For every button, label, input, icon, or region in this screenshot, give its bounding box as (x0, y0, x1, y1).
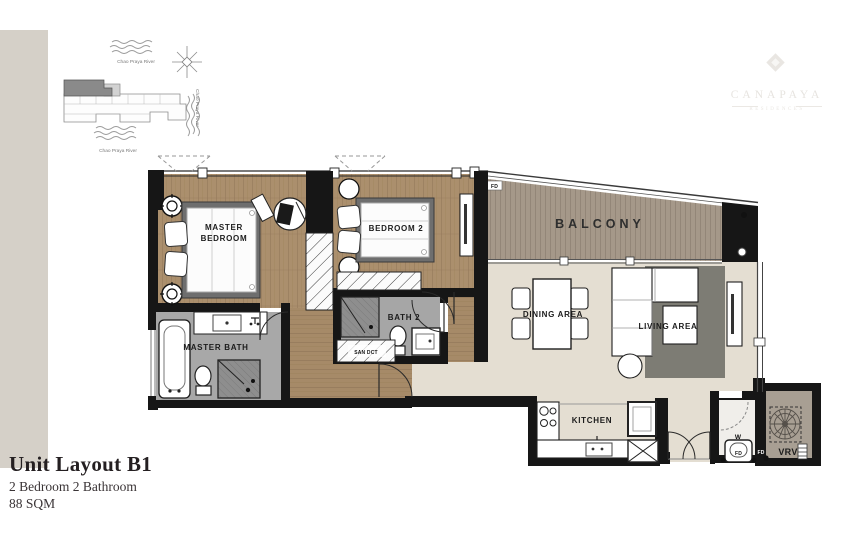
shower-icon (341, 297, 379, 337)
unit-location-highlight (64, 80, 112, 96)
vanity-sink-icon (412, 328, 440, 355)
living-area: LIVING AREA (612, 266, 742, 378)
brand-logo: CANAPAYA RESIDENCES (731, 53, 824, 112)
river-label-top: Chao Praya River (117, 59, 155, 65)
dining-chair-icon (570, 288, 588, 309)
dining-chair-icon (512, 288, 530, 309)
dining-chair-icon (570, 318, 588, 339)
river-waves-bottom-icon (94, 127, 136, 140)
river-label-right: Chao Praya River (194, 89, 200, 127)
dining-area: DINING AREA (512, 279, 588, 349)
vrv-label: VRV (778, 447, 797, 457)
bedroom2-tv-cabinet (460, 194, 473, 256)
balcony-fd-label: FD (491, 184, 498, 190)
vrv-fan-icon (770, 409, 800, 439)
living-label: LIVING AREA (639, 322, 698, 331)
unit-layout-title: Unit Layout B1 (9, 452, 152, 477)
shower-icon (218, 360, 260, 398)
title-block: Unit Layout B1 2 Bedroom 2 Bathroom 88 S… (9, 452, 152, 512)
floor-plan: FD BALCONY (148, 156, 821, 466)
master-bedroom-label-2: BEDROOM (201, 234, 248, 243)
page: Chao Praya River (0, 0, 850, 560)
unit-area-text: 88 SQM (9, 496, 152, 512)
laundry-room: W FD (719, 400, 756, 462)
vrv-fd-label: FD (757, 450, 764, 456)
dining-label: DINING AREA (523, 310, 583, 319)
corridor-floor-a (283, 308, 333, 402)
compass-icon (172, 46, 202, 78)
pillow-icon (337, 230, 361, 254)
corridor-floor-b (333, 362, 413, 402)
logo-brand-subtext: RESIDENCES (749, 107, 804, 112)
river-waves-top-icon (110, 41, 152, 54)
stove-counter (537, 402, 559, 446)
unit-layout-subtitle: 2 Bedroom 2 Bathroom (9, 479, 152, 495)
living-tv-console (727, 282, 742, 346)
sanitary-duct: SAN DCT (337, 340, 395, 362)
fridge-icon (628, 402, 656, 436)
south-wall-mid (405, 396, 537, 407)
bathtub-icon (159, 320, 190, 398)
pillow-icon (337, 205, 361, 229)
river-label-bottom: Chao Praya River (99, 148, 137, 154)
bedroom2-wardrobe (337, 272, 421, 290)
site-map: Chao Praya River (64, 41, 202, 155)
washing-machine-icon: FD (725, 440, 752, 462)
san-duct-label: SAN DCT (354, 350, 378, 356)
kitchen-label: KITCHEN (572, 416, 612, 425)
master-bath-label: MASTER BATH (183, 343, 248, 352)
vanity-sink-icon (194, 312, 267, 334)
master-bedroom-label-1: MASTER (205, 223, 243, 232)
side-table-icon (339, 179, 359, 199)
toilet-icon (195, 366, 211, 395)
awning-projection-lines (158, 156, 385, 171)
washer-fd-label: FD (735, 451, 742, 457)
dining-chair-icon (512, 318, 530, 339)
pillow-icon (164, 251, 188, 276)
logo-brand-text: CANAPAYA (731, 89, 824, 101)
corridor-nook-floor (448, 292, 478, 364)
bedroom-divider-wall (306, 171, 333, 235)
balcony: FD BALCONY (487, 172, 758, 263)
corridor-wardrobe (306, 233, 333, 310)
balcony-drain-icon (738, 248, 746, 256)
round-side-table-icon (618, 354, 642, 378)
building-footprint (64, 80, 186, 122)
bedroom2-label: BEDROOM 2 (369, 224, 424, 233)
master-bath: MASTER BATH (156, 312, 288, 400)
shaft-icon (628, 440, 658, 462)
ladder-icon (798, 444, 807, 459)
bedroom2-east-wall (474, 171, 488, 362)
pillow-icon (164, 221, 188, 246)
balcony-label: BALCONY (555, 217, 645, 231)
